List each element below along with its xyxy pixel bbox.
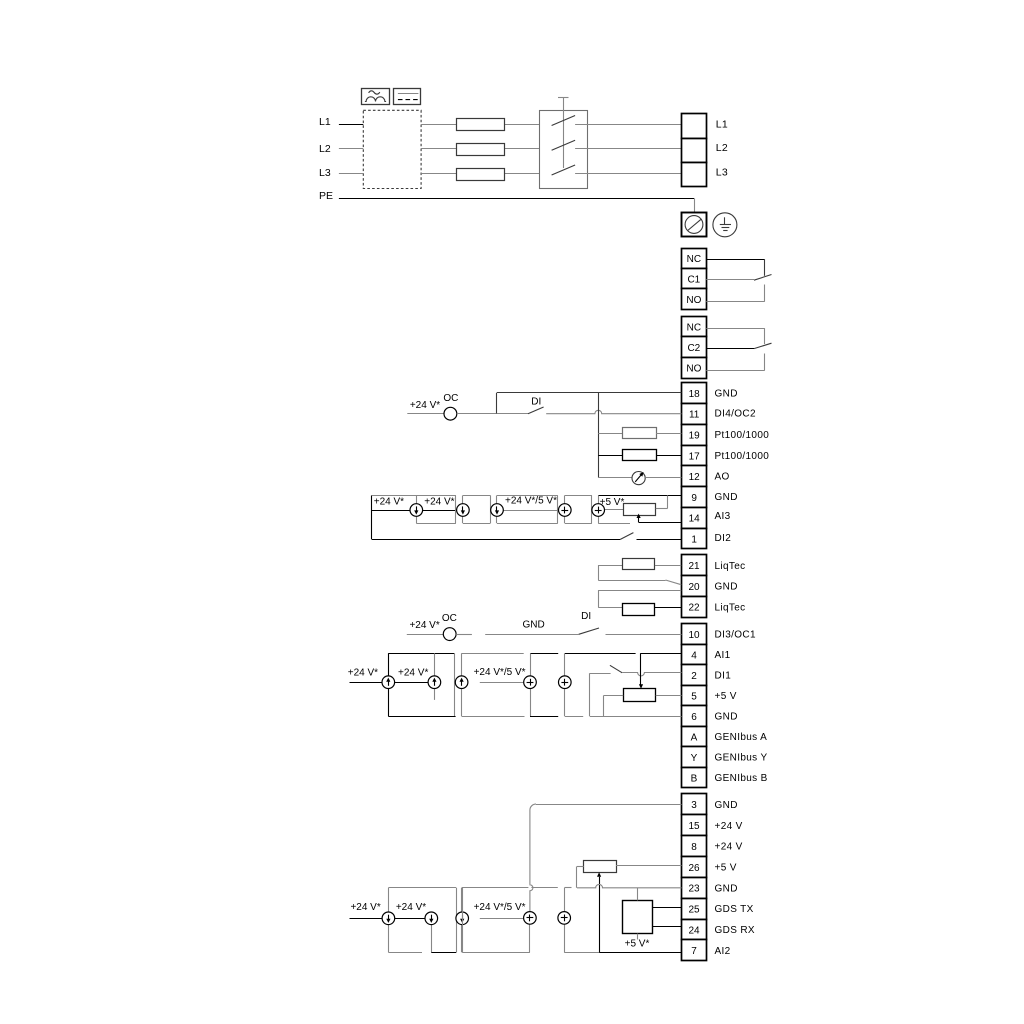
svg-text:AI3: AI3 — [715, 511, 731, 522]
svg-text:NO: NO — [686, 295, 701, 306]
svg-text:21: 21 — [688, 561, 700, 572]
svg-text:+24 V: +24 V — [715, 821, 743, 832]
svg-text:NC: NC — [687, 254, 701, 265]
svg-text:24: 24 — [688, 925, 700, 936]
svg-text:+24 V*: +24 V* — [350, 902, 380, 913]
svg-text:+24 V*: +24 V* — [398, 667, 428, 678]
svg-text:GDS TX: GDS TX — [715, 904, 754, 915]
svg-text:Pt100/1000: Pt100/1000 — [715, 451, 770, 462]
svg-text:+24 V*/5 V*: +24 V*/5 V* — [474, 667, 526, 678]
svg-text:DI2: DI2 — [715, 533, 732, 544]
svg-text:C1: C1 — [687, 274, 700, 285]
svg-text:L1: L1 — [716, 118, 728, 130]
svg-text:LiqTec: LiqTec — [715, 561, 746, 572]
svg-text:2: 2 — [691, 671, 697, 682]
svg-text:GND: GND — [715, 492, 738, 503]
svg-text:L1: L1 — [319, 116, 331, 128]
svg-text:OC: OC — [442, 613, 457, 624]
svg-text:+24 V*/5 V*: +24 V*/5 V* — [505, 495, 557, 506]
svg-text:GND: GND — [715, 711, 738, 722]
svg-text:+24 V*: +24 V* — [348, 667, 378, 678]
svg-text:PE: PE — [319, 190, 333, 202]
svg-text:NC: NC — [687, 322, 701, 333]
svg-text:DI4/OC2: DI4/OC2 — [715, 408, 756, 419]
svg-text:23: 23 — [688, 884, 700, 895]
svg-text:B: B — [691, 773, 698, 784]
svg-text:22: 22 — [688, 603, 700, 614]
svg-text:12: 12 — [689, 472, 701, 483]
svg-text:25: 25 — [688, 904, 700, 915]
svg-text:DI1: DI1 — [715, 670, 732, 681]
svg-text:4: 4 — [691, 650, 697, 661]
svg-text:C2: C2 — [687, 343, 700, 354]
svg-text:+24 V*: +24 V* — [396, 902, 426, 913]
svg-text:8: 8 — [691, 842, 697, 853]
svg-text:15: 15 — [688, 821, 700, 832]
svg-text:GND: GND — [715, 800, 738, 811]
svg-text:+24 V*: +24 V* — [409, 620, 439, 631]
svg-text:7: 7 — [691, 946, 697, 957]
svg-text:9: 9 — [691, 493, 697, 504]
svg-text:Y: Y — [691, 753, 698, 764]
svg-text:1: 1 — [691, 535, 697, 546]
svg-text:GENIbus B: GENIbus B — [715, 773, 768, 784]
svg-text:Pt100/1000: Pt100/1000 — [715, 430, 770, 441]
svg-text:AI1: AI1 — [715, 650, 731, 661]
svg-text:19: 19 — [689, 431, 701, 442]
svg-text:DI3/OC1: DI3/OC1 — [715, 630, 756, 641]
svg-text:18: 18 — [689, 389, 701, 400]
svg-text:17: 17 — [689, 451, 701, 462]
svg-text:OC: OC — [443, 393, 458, 404]
svg-text:DI: DI — [581, 611, 591, 622]
svg-text:GND: GND — [715, 389, 738, 400]
svg-text:+5 V: +5 V — [715, 863, 737, 874]
svg-text:GENIbus A: GENIbus A — [715, 732, 768, 743]
svg-text:+24 V: +24 V — [715, 842, 743, 853]
svg-text:14: 14 — [689, 514, 701, 525]
svg-text:AO: AO — [715, 472, 730, 483]
svg-text:L3: L3 — [319, 167, 331, 179]
svg-text:+24 V*: +24 V* — [424, 497, 454, 508]
svg-text:+24 V*/5 V*: +24 V*/5 V* — [474, 902, 526, 913]
svg-text:LiqTec: LiqTec — [715, 603, 746, 614]
svg-text:11: 11 — [689, 410, 700, 421]
svg-text:DI: DI — [531, 396, 541, 407]
svg-text:L2: L2 — [319, 143, 331, 155]
svg-text:5: 5 — [691, 691, 697, 702]
svg-text:+24 V*: +24 V* — [374, 497, 404, 508]
svg-text:10: 10 — [688, 630, 700, 641]
svg-text:L3: L3 — [716, 167, 728, 179]
svg-text:20: 20 — [688, 582, 700, 593]
svg-text:A: A — [691, 732, 698, 743]
svg-text:GDS RX: GDS RX — [715, 925, 755, 936]
svg-text:+24 V*: +24 V* — [410, 400, 440, 411]
svg-text:+5 V: +5 V — [715, 691, 737, 702]
svg-text:GENIbus Y: GENIbus Y — [715, 752, 768, 763]
svg-text:GND: GND — [715, 582, 738, 593]
svg-text:L2: L2 — [716, 142, 728, 154]
svg-text:GND: GND — [715, 883, 738, 894]
svg-text:6: 6 — [691, 712, 697, 723]
svg-text:NO: NO — [686, 364, 701, 375]
svg-text:GND: GND — [522, 620, 544, 631]
svg-text:3: 3 — [691, 800, 697, 811]
svg-text:AI2: AI2 — [715, 946, 731, 957]
svg-text:26: 26 — [688, 863, 700, 874]
svg-text:+5 V*: +5 V* — [625, 939, 650, 950]
